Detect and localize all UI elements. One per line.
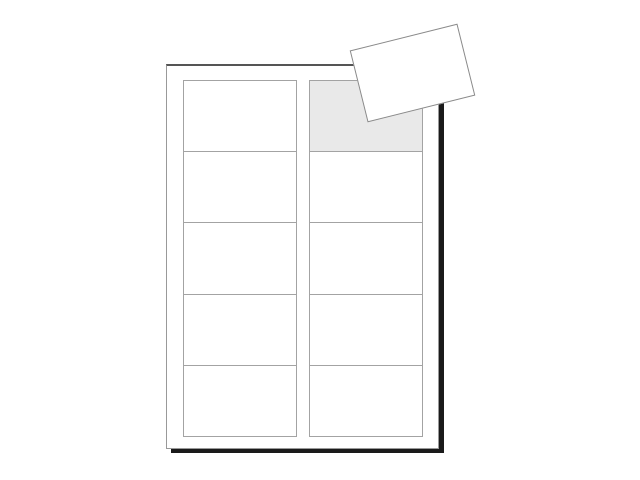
label-cell bbox=[184, 295, 296, 366]
label-cell bbox=[310, 295, 422, 366]
label-cell bbox=[184, 366, 296, 436]
label-cell bbox=[310, 366, 422, 436]
product-illustration-canvas bbox=[0, 0, 640, 480]
peeled-label bbox=[350, 24, 476, 123]
label-cell bbox=[310, 152, 422, 223]
label-cell bbox=[184, 223, 296, 294]
label-cell bbox=[310, 223, 422, 294]
label-sheet bbox=[166, 64, 439, 449]
label-cell bbox=[184, 81, 296, 152]
label-cell bbox=[184, 152, 296, 223]
label-column-right bbox=[309, 80, 423, 437]
label-column-left bbox=[183, 80, 297, 437]
